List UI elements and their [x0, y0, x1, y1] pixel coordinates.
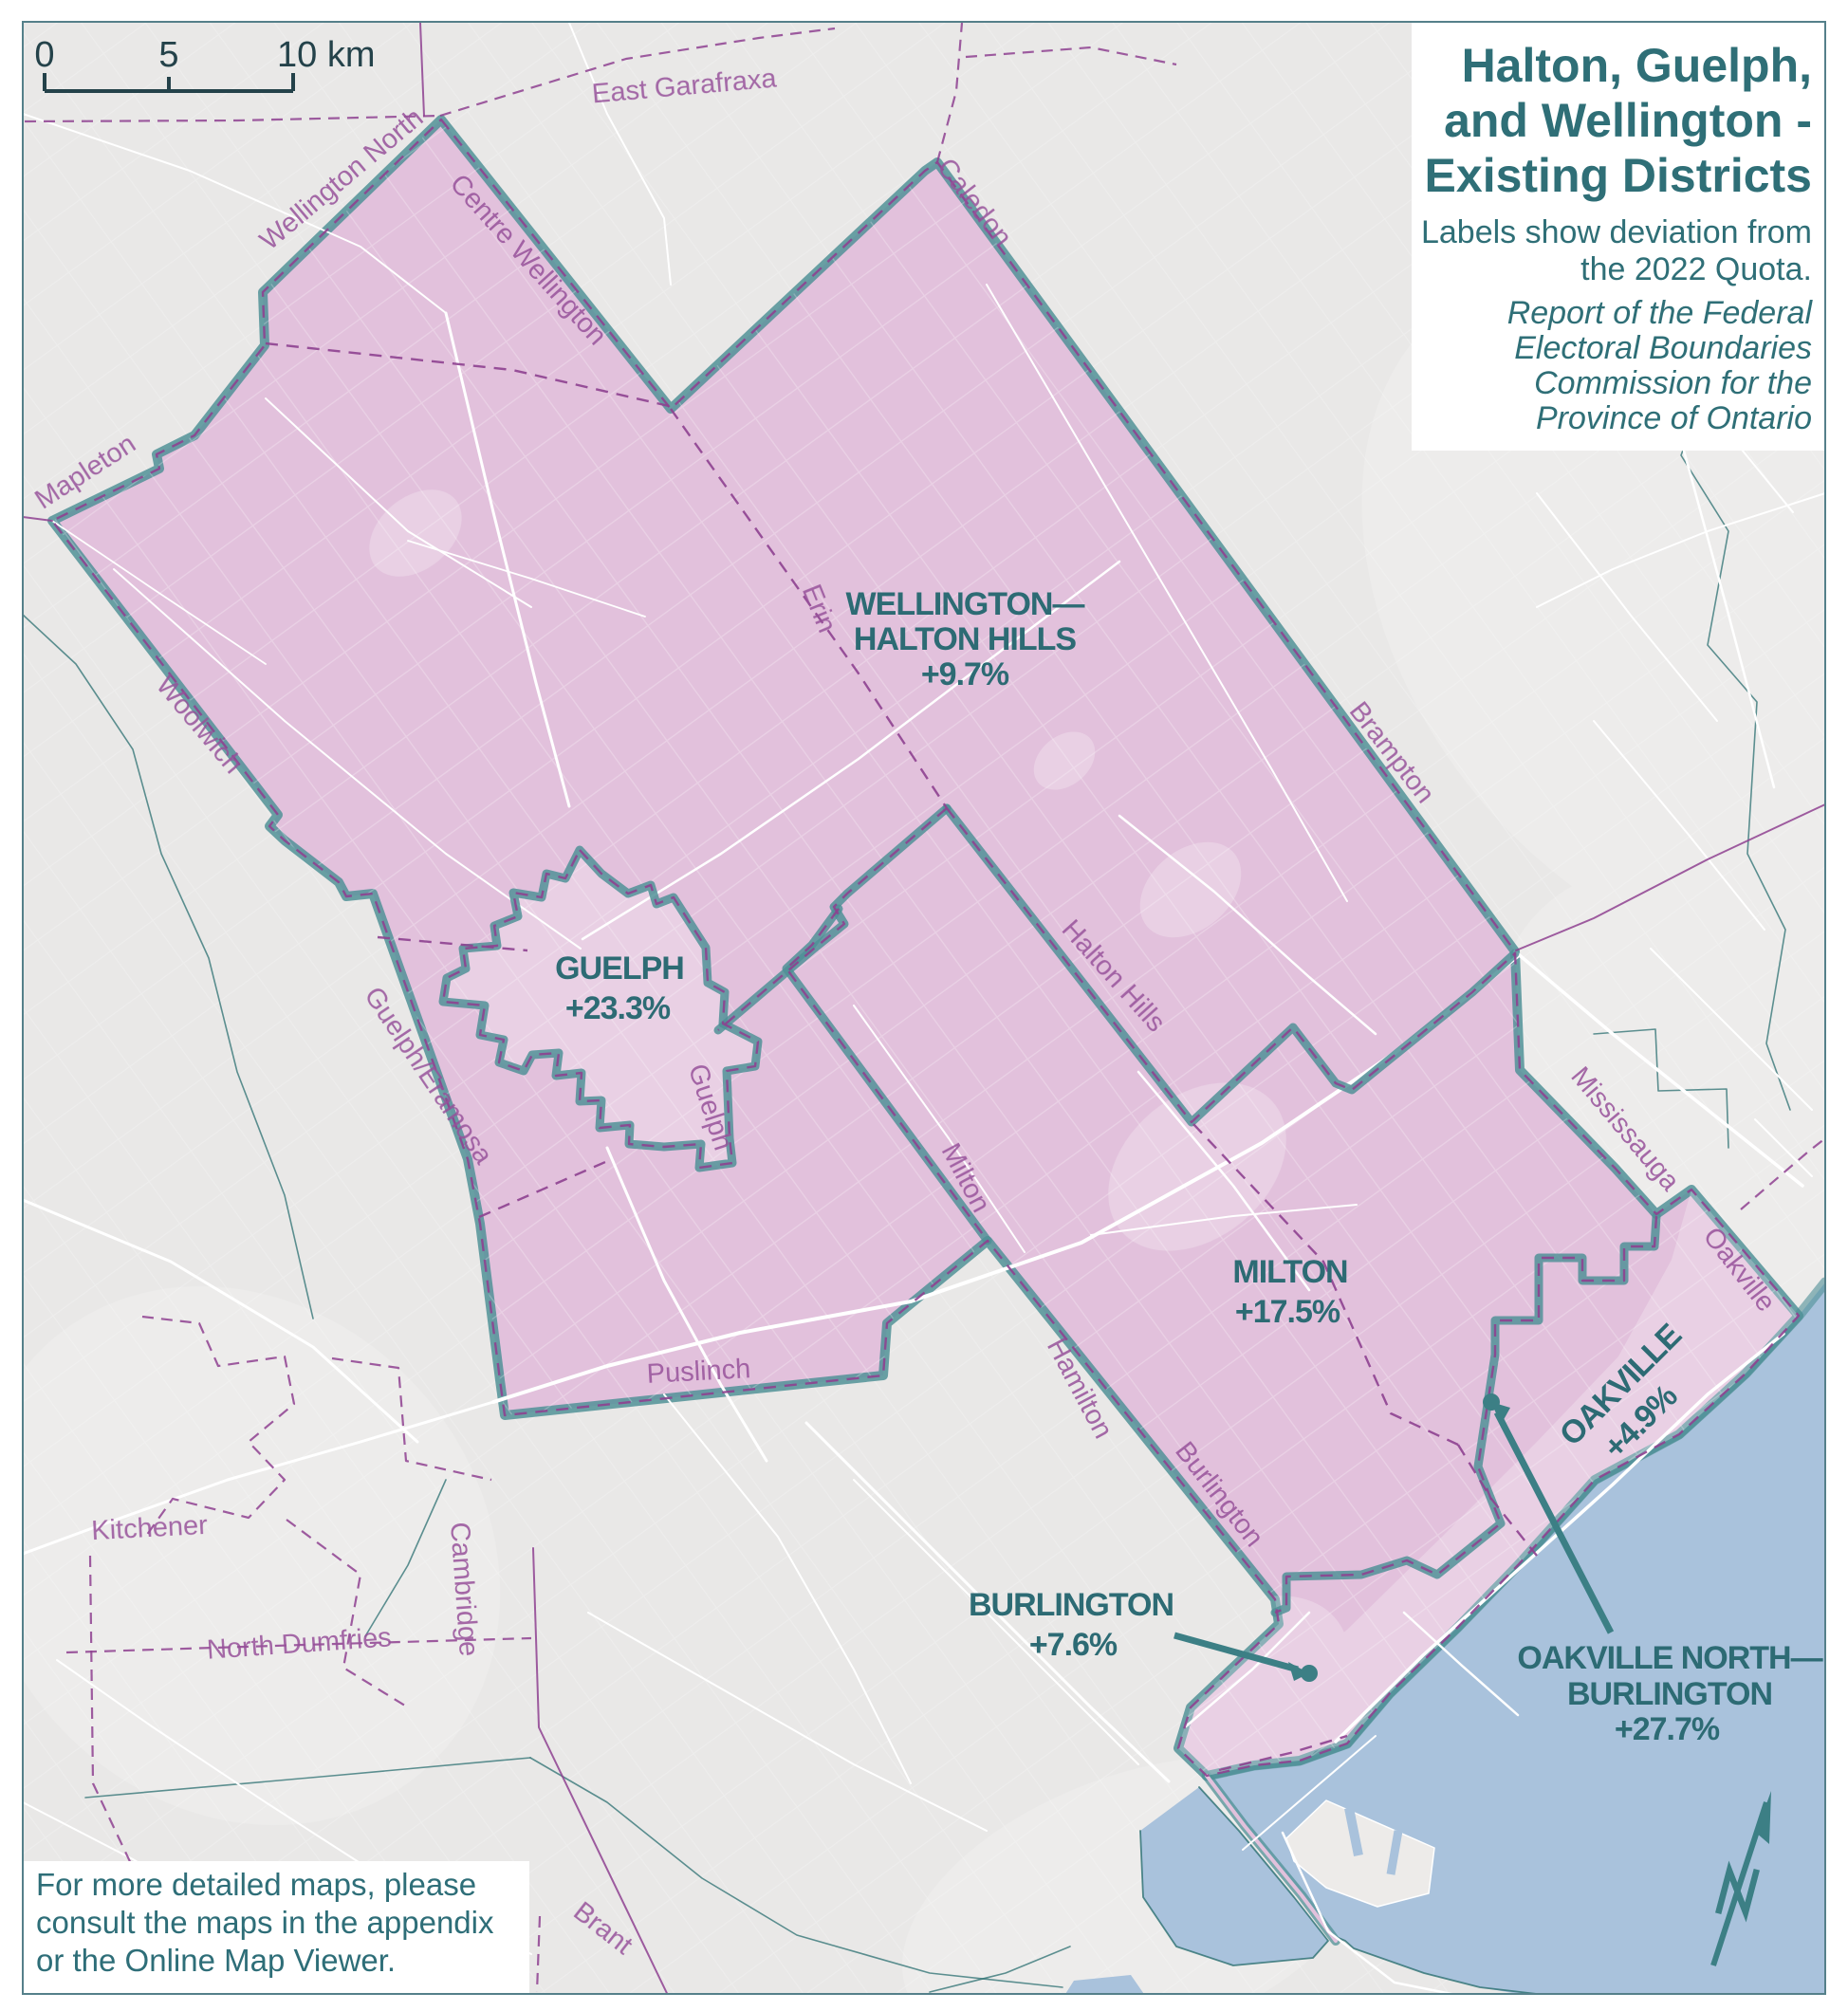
- svg-text:For more detailed maps, please: For more detailed maps, please: [36, 1867, 476, 1902]
- svg-text:Report of the Federal: Report of the Federal: [1507, 295, 1814, 331]
- svg-text:0: 0: [34, 35, 54, 75]
- svg-text:WELLINGTON—: WELLINGTON—: [846, 586, 1085, 622]
- svg-text:Puslinch: Puslinch: [646, 1354, 751, 1390]
- svg-text:Kitchener: Kitchener: [91, 1510, 209, 1546]
- svg-text:OAKVILLE NORTH—: OAKVILLE NORTH—: [1517, 1640, 1822, 1676]
- svg-text:10 km: 10 km: [277, 35, 375, 75]
- svg-text:BURLINGTON: BURLINGTON: [1567, 1676, 1772, 1712]
- svg-text:MILTON: MILTON: [1232, 1254, 1347, 1290]
- svg-text:Halton, Guelph,: Halton, Guelph,: [1462, 39, 1812, 92]
- svg-text:and Wellington -: and Wellington -: [1444, 94, 1812, 147]
- svg-text:or the Online Map Viewer.: or the Online Map Viewer.: [36, 1943, 396, 1978]
- svg-text:Existing Districts: Existing Districts: [1425, 149, 1812, 202]
- svg-text:Electoral Boundaries: Electoral Boundaries: [1514, 330, 1812, 366]
- svg-text:+17.5%: +17.5%: [1235, 1294, 1340, 1330]
- svg-text:HALTON HILLS: HALTON HILLS: [854, 621, 1076, 657]
- svg-text:Commission for the: Commission for the: [1534, 365, 1812, 401]
- svg-text:5: 5: [158, 35, 178, 75]
- svg-text:Province of Ontario: Province of Ontario: [1536, 400, 1812, 436]
- svg-text:+7.6%: +7.6%: [1029, 1627, 1118, 1663]
- svg-text:Labels show deviation from: Labels show deviation from: [1421, 214, 1812, 250]
- svg-text:the 2022 Quota.: the 2022 Quota.: [1580, 251, 1812, 287]
- svg-text:+9.7%: +9.7%: [921, 656, 1009, 692]
- svg-text:BURLINGTON: BURLINGTON: [969, 1587, 1173, 1623]
- svg-text:GUELPH: GUELPH: [555, 950, 684, 987]
- svg-text:+23.3%: +23.3%: [565, 990, 671, 1026]
- svg-text:+27.7%: +27.7%: [1615, 1711, 1720, 1747]
- svg-text:consult the maps in the append: consult the maps in the appendix: [36, 1905, 494, 1940]
